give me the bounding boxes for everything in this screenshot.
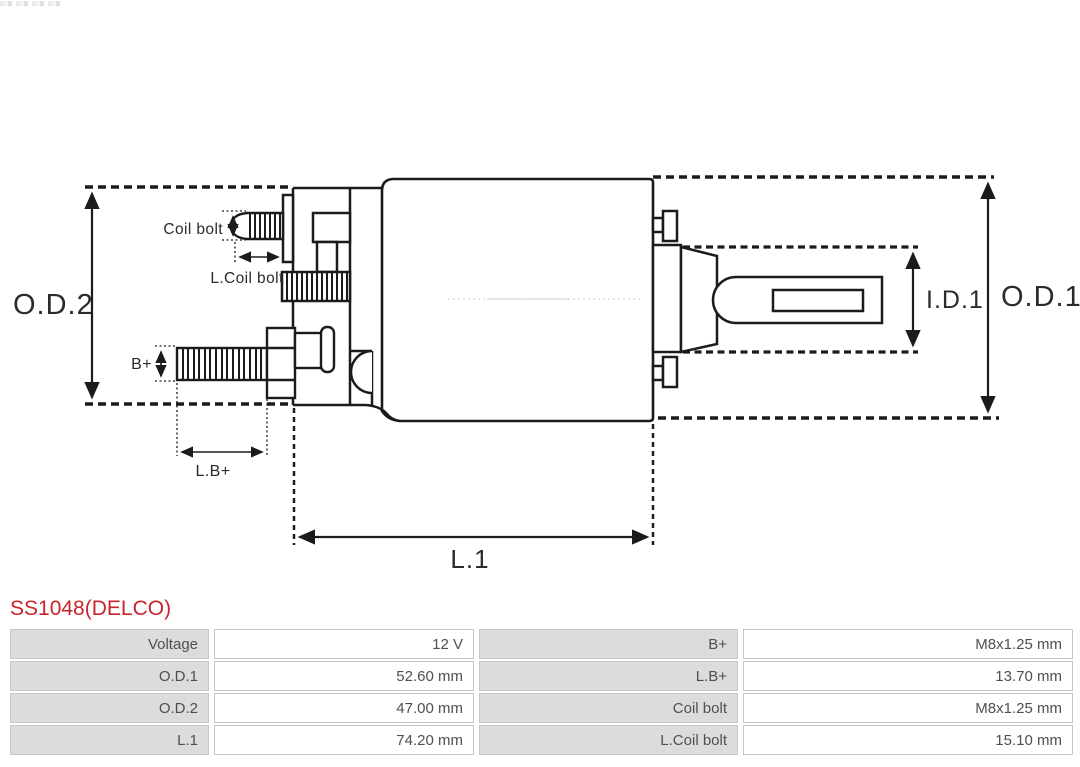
spec-value-b-plus: M8x1.25 mm	[743, 629, 1073, 659]
spec-label-b-plus: B+	[479, 629, 738, 659]
plunger-collar	[681, 247, 717, 352]
dim-b-plus-group: B+	[131, 346, 177, 381]
spec-value-od1: 52.60 mm	[214, 661, 474, 691]
spec-label-l1: L.1	[10, 725, 209, 755]
dim-coil-bolt-group: Coil bolt	[163, 211, 246, 240]
spec-label-od2: O.D.2	[10, 693, 209, 723]
solenoid-body	[382, 179, 653, 421]
solenoid-body-outline	[382, 179, 653, 421]
dim-l1-group: L.1	[294, 408, 653, 574]
spec-table: Voltage 12 V B+ M8x1.25 mm O.D.1 52.60 m…	[10, 629, 1073, 755]
dim-l-b-plus-group: L.B+	[177, 383, 267, 480]
dim-label-id1: I.D.1	[926, 286, 984, 314]
solenoid-technical-drawing: O.D.2	[0, 0, 1080, 592]
dim-label-l-coil-bolt: L.Coil bolt	[210, 270, 284, 287]
dim-label-od2: O.D.2	[13, 289, 94, 321]
spec-label-voltage: Voltage	[10, 629, 209, 659]
spec-label-l-coil-bolt: L.Coil bolt	[479, 725, 738, 755]
spec-value-lb-plus: 13.70 mm	[743, 661, 1073, 691]
coil-bolt-stud	[231, 213, 283, 239]
b-plus-thread-hatching	[183, 349, 261, 379]
terminal-tab-top	[663, 211, 677, 241]
bracket-spring-arc	[351, 351, 372, 393]
bracket-step-cut-upper	[313, 213, 350, 242]
b-plus-stud	[177, 327, 334, 398]
terminal-tab-bottom-neck	[653, 366, 663, 380]
b-plus-hex-nut	[267, 328, 295, 398]
dim-label-l1: L.1	[450, 544, 489, 574]
dim-label-od1: O.D.1	[1001, 281, 1080, 313]
dim-label-b-plus: B+	[131, 356, 152, 373]
dim-label-l-b-plus: L.B+	[196, 463, 231, 480]
spec-value-od2: 47.00 mm	[214, 693, 474, 723]
spec-value-l-coil-bolt: 15.10 mm	[743, 725, 1073, 755]
spec-value-l1: 74.20 mm	[214, 725, 474, 755]
spec-value-coil-bolt: M8x1.25 mm	[743, 693, 1073, 723]
spec-label-od1: O.D.1	[10, 661, 209, 691]
b-plus-washer	[321, 327, 334, 372]
dim-label-coil-bolt: Coil bolt	[163, 221, 223, 238]
page: O.D.2	[0, 0, 1080, 767]
spec-value-voltage: 12 V	[214, 629, 474, 659]
plunger-assembly	[653, 211, 882, 387]
coil-bolt-thread-hatching	[250, 214, 280, 238]
plunger-flange	[653, 245, 681, 352]
l-coil-bolt-extension-lines	[235, 242, 283, 262]
b-plus-extension-lines	[155, 346, 177, 381]
boss-thread-hatching	[287, 273, 347, 300]
product-title: SS1048(DELCO)	[10, 596, 171, 622]
dim-l-coil-bolt-group: L.Coil bolt	[210, 242, 284, 287]
bracket-step-cut-lower	[317, 242, 337, 272]
l-b-plus-extension-lines	[177, 383, 267, 456]
terminal-tab-bottom	[663, 357, 677, 387]
spec-label-lb-plus: L.B+	[479, 661, 738, 691]
bracket-front-plate	[283, 195, 293, 262]
plunger-shaft-slot	[773, 290, 863, 311]
spec-label-coil-bolt: Coil bolt	[479, 693, 738, 723]
terminal-tab-top-neck	[653, 218, 663, 232]
